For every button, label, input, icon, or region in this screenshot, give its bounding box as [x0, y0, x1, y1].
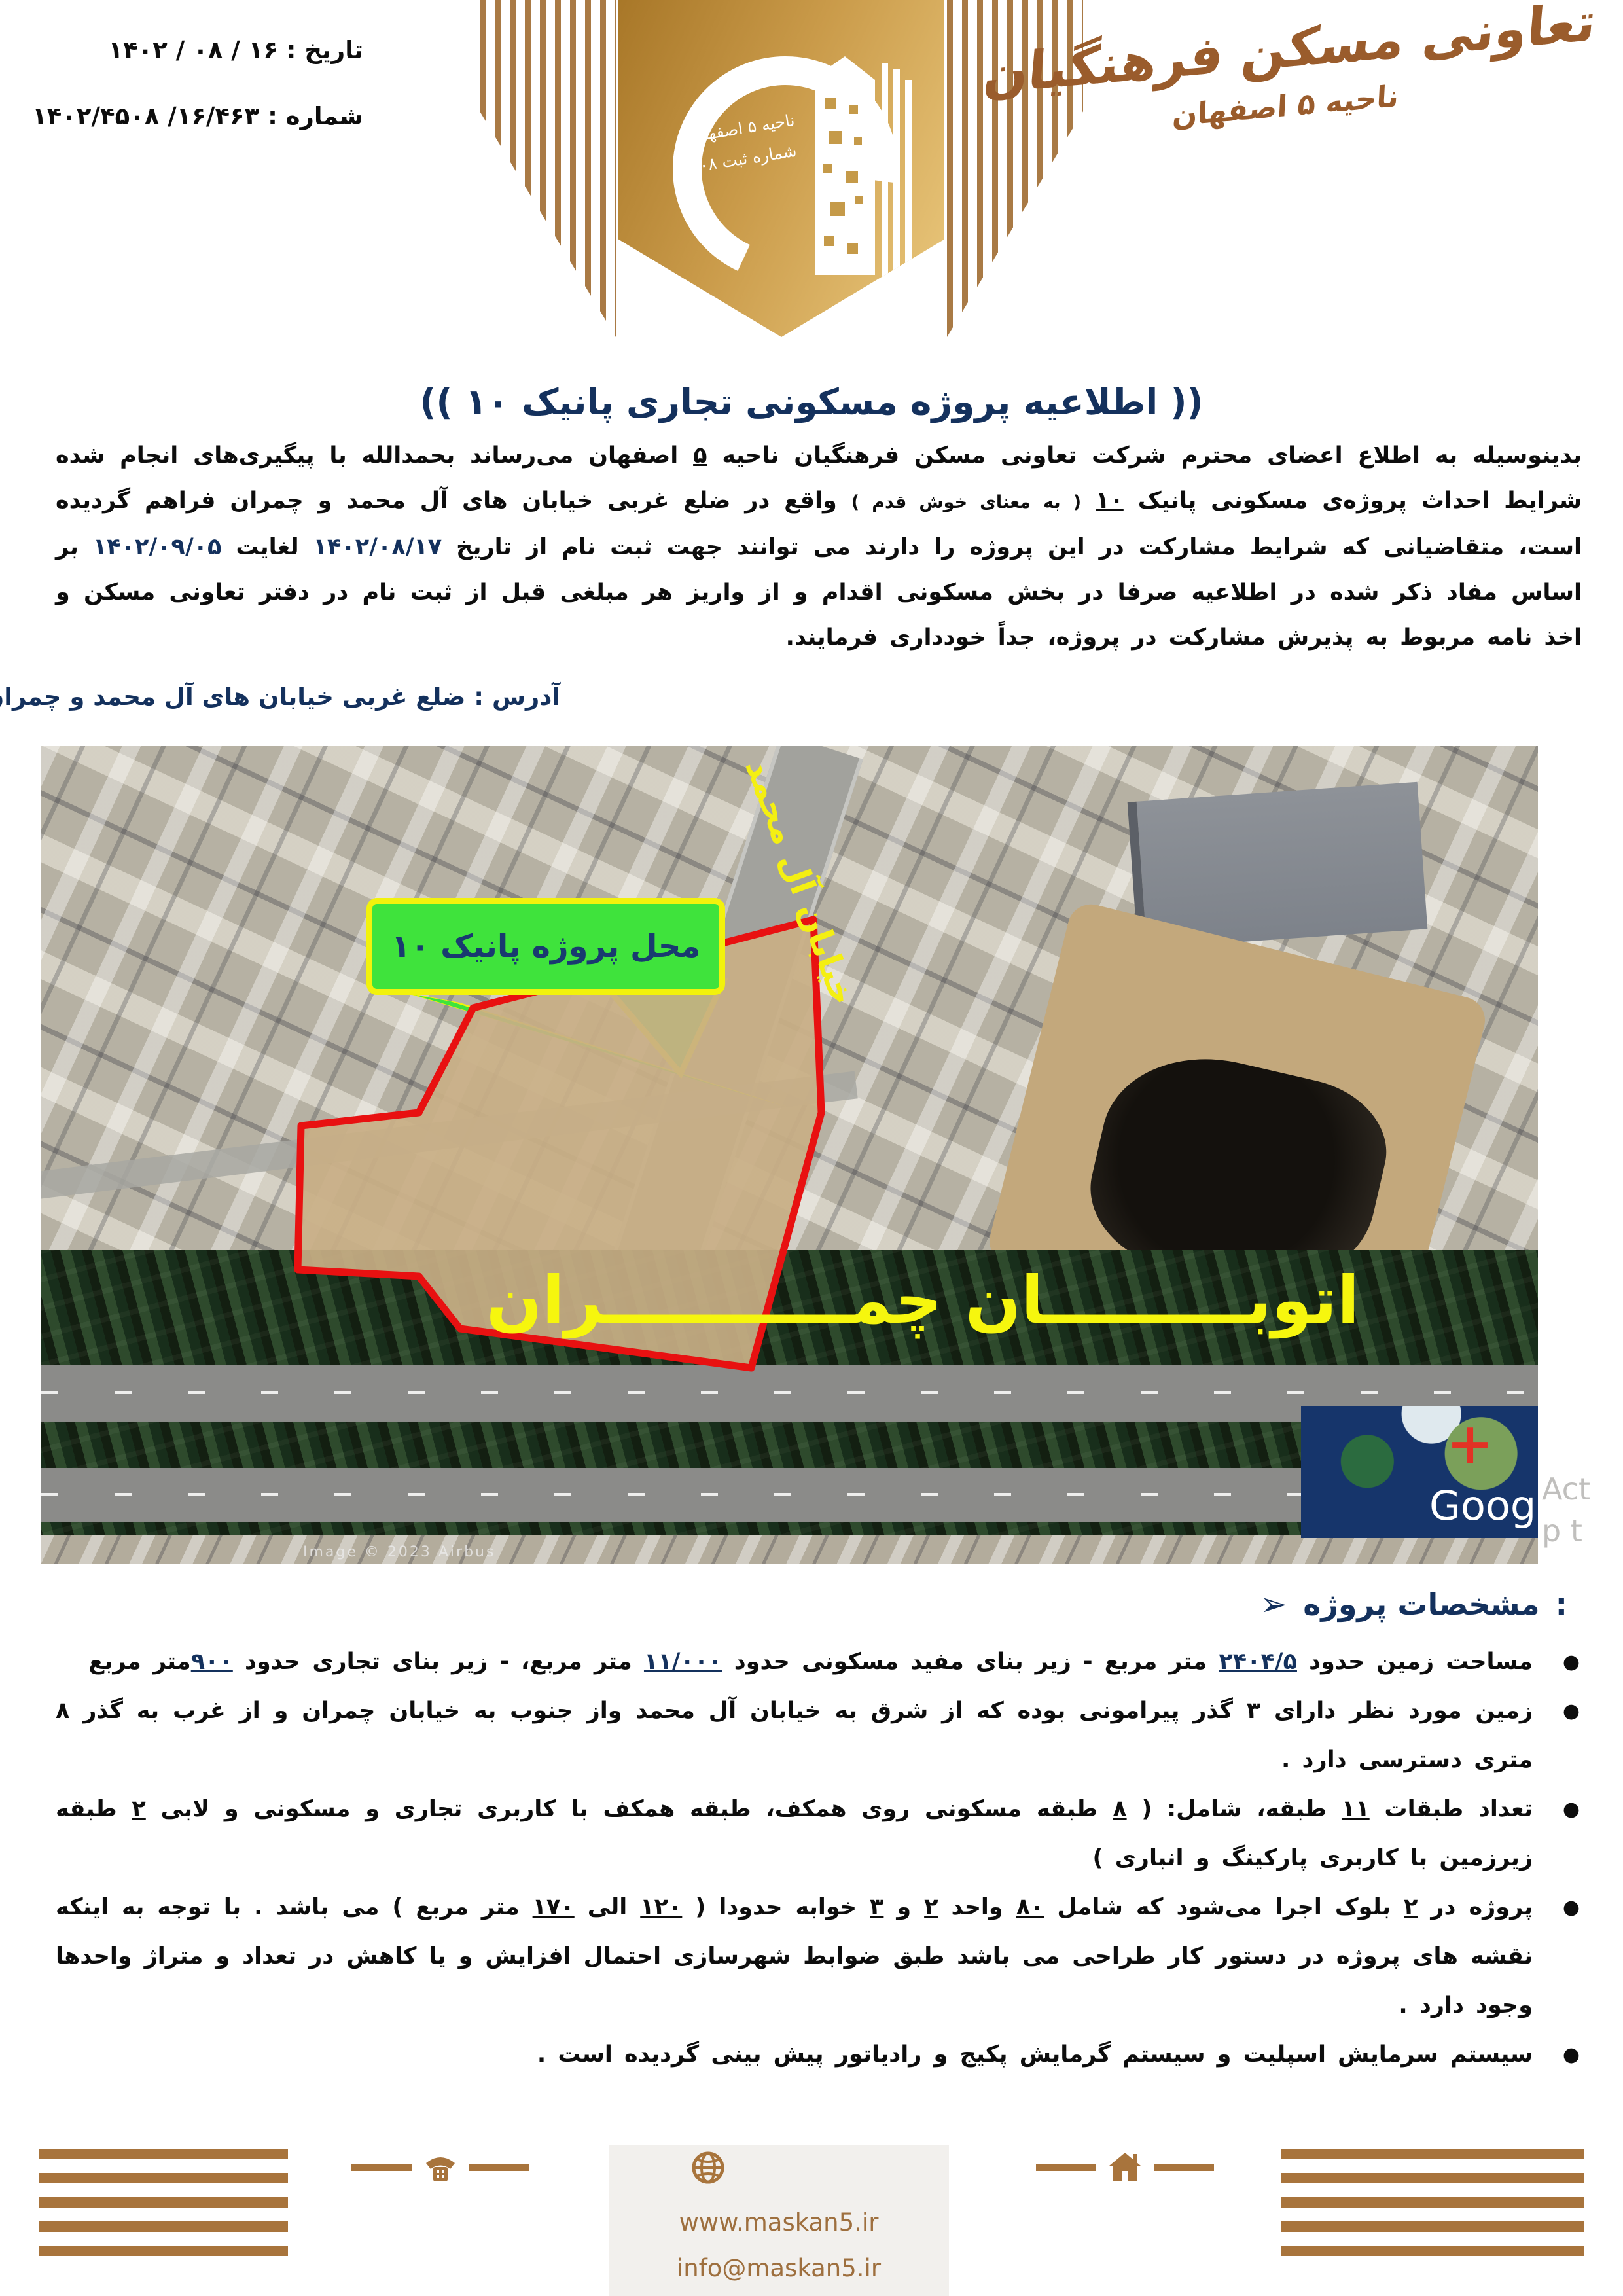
intro-paragraph: بدینوسیله به اطلاع اعضای محترم شرکت تعاو… — [56, 433, 1582, 660]
footer-stripes-right-icon — [1281, 2149, 1584, 2265]
logo-pennant: ناحیه ۵ اصفهان شماره ثبت ۴۵۰۸ — [618, 0, 944, 337]
footer-stripes-left-icon — [39, 2149, 288, 2265]
spec-item-hvac: سیستم سرمایش اسپلیت و سیستم گرمایش پکیج … — [56, 2030, 1584, 2079]
specs-heading-text: مشخصات پروژه — [1303, 1587, 1539, 1622]
brand-calligraphy: تعاونی مسکن فرهنگیان ناحیه ۵ اصفهان — [1065, 14, 1597, 119]
globe-icon — [690, 2150, 726, 2185]
satellite-map: محل پروژه پانیک ۱۰ خیابان آل محمد اتوبــ… — [41, 746, 1538, 1564]
announcement-title: (( اطلاعیه پروژه مسکونی تجاری پانیک ۱۰ )… — [0, 381, 1623, 423]
map-side-note: Act — [1542, 1471, 1590, 1507]
project-location-callout: محل پروژه پانیک ۱۰ — [366, 898, 725, 995]
map-side-note: p t — [1542, 1513, 1582, 1549]
letter-number: شماره : ۱۶/۴۶۳/ ۱۴۰۲/۴۵۰۸ — [56, 102, 363, 130]
map-marker-cross-icon: + — [1446, 1411, 1493, 1477]
document-page: تاریخ : ۱۶ / ۰۸ / ۱۴۰۲ شماره : ۱۶/۴۶۳/ ۱… — [0, 0, 1623, 2296]
google-watermark: Google — [1429, 1482, 1538, 1530]
footer-globe-divider — [690, 2150, 726, 2185]
home-icon — [1108, 2150, 1142, 2184]
spec-item-access: زمین مورد نظر دارای ۳ گذر پیرامونی بوده … — [56, 1687, 1584, 1785]
building-swoosh-icon: ناحیه ۵ اصفهان شماره ثبت ۴۵۰۸ — [618, 0, 944, 337]
letter-date: تاریخ : ۱۶ / ۰۸ / ۱۴۰۲ — [56, 36, 363, 64]
footer-contact-panel: www.maskan5.ir info@maskan5.ir — [609, 2145, 949, 2296]
globe-thumbnail: Google + — [1301, 1406, 1538, 1538]
map-attribution: Image © 2023 Airbus — [303, 1544, 495, 1560]
spec-item-area: مساحت زمین حدود ۲۴۰۴/۵ متر مربع - زیر بن… — [56, 1638, 1584, 1687]
footer-home-divider — [1036, 2150, 1214, 2184]
phone-icon — [423, 2150, 457, 2184]
highway-name-label: اتوبـــــــــان چمـــــــــــران — [486, 1262, 1359, 1338]
letter-meta: تاریخ : ۱۶ / ۰۸ / ۱۴۰۲ شماره : ۱۶/۴۶۳/ ۱… — [56, 36, 363, 168]
specs-heading-colon: : — [1556, 1587, 1567, 1622]
email-address: info@maskan5.ir — [609, 2254, 949, 2282]
specs-list: مساحت زمین حدود ۲۴۰۴/۵ متر مربع - زیر بن… — [56, 1638, 1584, 2079]
address-line: آدرس : ضلع غربی خیابان های آل محمد و چمر… — [92, 683, 560, 711]
logo-stripes-left-icon — [480, 0, 616, 337]
specs-heading: ➢ مشخصات پروژه : — [1260, 1585, 1567, 1623]
arrow-bullet-icon: ➢ — [1260, 1585, 1287, 1623]
spec-item-floors: تعداد طبقات ۱۱ طبقه، شامل: ( ۸ طبقه مسکو… — [56, 1785, 1584, 1883]
footer-phone-divider — [351, 2150, 529, 2184]
website-link: www.maskan5.ir — [609, 2208, 949, 2236]
spec-item-blocks: پروژه در ۲ بلوک اجرا می‌شود که شامل ۸۰ و… — [56, 1883, 1584, 2030]
